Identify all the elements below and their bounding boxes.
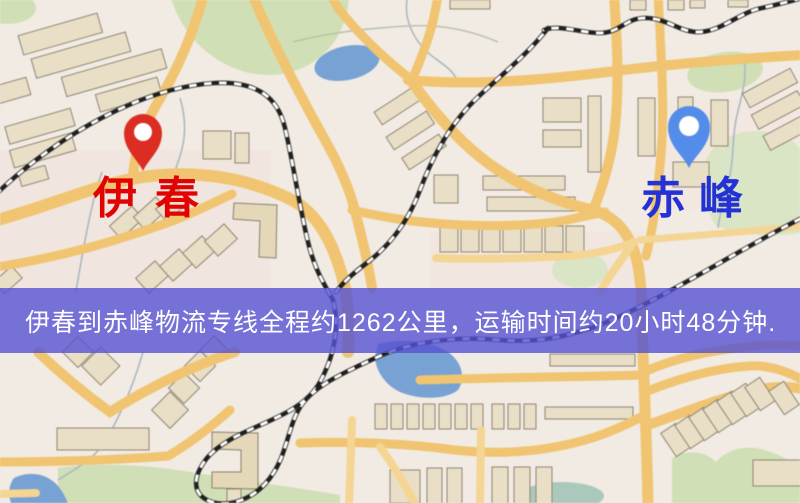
map-screenshot: 伊春 赤峰 伊春到赤峰物流专线全程约1262公里，运输时间约20小时48分钟. xyxy=(0,0,800,503)
origin-pin-hole xyxy=(134,123,152,141)
destination-city-label: 赤峰 xyxy=(641,176,757,222)
origin-city-label: 伊春 xyxy=(93,176,217,222)
map-canvas xyxy=(0,0,800,503)
building-row-bottom xyxy=(375,404,536,429)
destination-pin-hole xyxy=(679,116,699,136)
route-info-banner: 伊春到赤峰物流专线全程约1262公里，运输时间约20小时48分钟. xyxy=(0,288,800,353)
building-row-squares xyxy=(440,226,584,252)
map-art xyxy=(0,0,800,503)
route-info-text: 伊春到赤峰物流专线全程约1262公里，运输时间约20小时48分钟. xyxy=(25,303,776,339)
